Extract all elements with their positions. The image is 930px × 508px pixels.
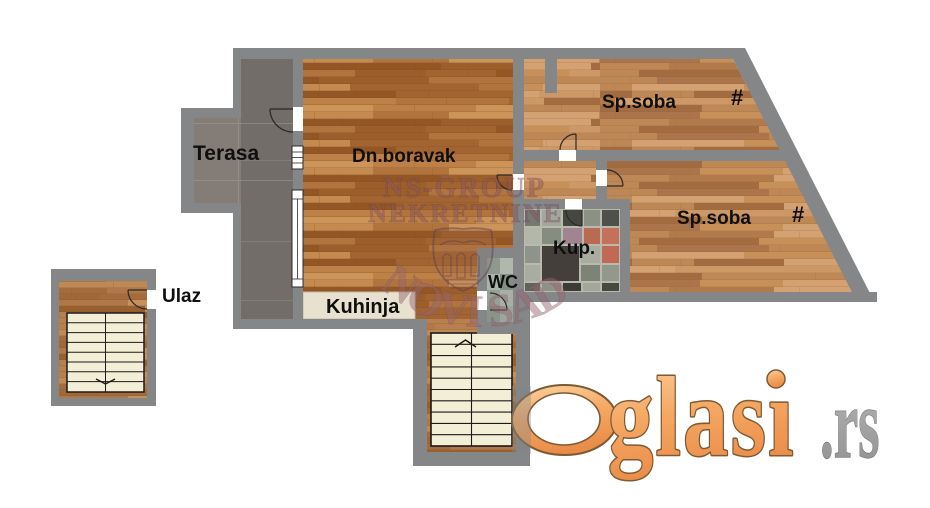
svg-text:Sp.soba: Sp.soba	[677, 208, 751, 229]
svg-text:Sp.soba: Sp.soba	[602, 92, 676, 113]
svg-text:#: #	[792, 202, 804, 227]
svg-text:Terasa: Terasa	[193, 142, 259, 165]
svg-text:.rs: .rs	[820, 369, 880, 479]
svg-text:Kup.: Kup.	[553, 238, 595, 259]
svg-text:Ulaz: Ulaz	[162, 286, 201, 307]
svg-text:NEKRETNINE: NEKRETNINE	[368, 199, 561, 228]
svg-text:#: #	[731, 85, 743, 110]
svg-text:Dn.boravak: Dn.boravak	[352, 146, 456, 167]
